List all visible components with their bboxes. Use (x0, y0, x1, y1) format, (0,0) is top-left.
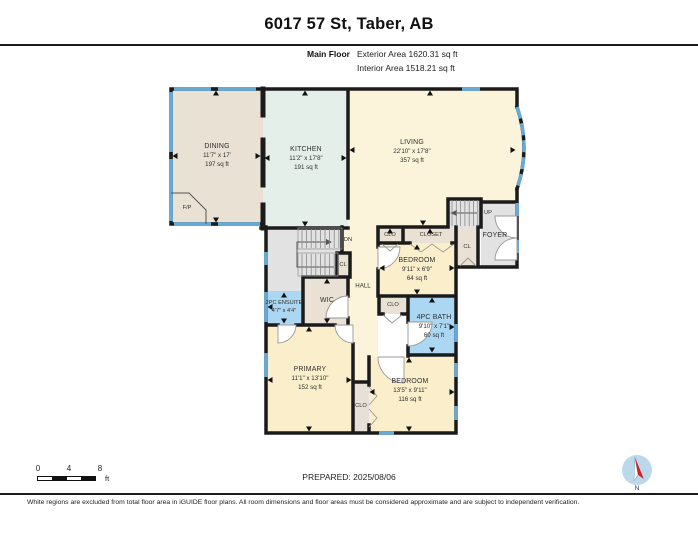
clo-top-label: CLO (384, 232, 396, 238)
fireplace-label: F/P (183, 205, 192, 211)
stairs-down-label: DN (344, 237, 352, 243)
prepared-date: PREPARED: 2025/08/06 (0, 472, 698, 482)
room-label-dining: DINING11'7" x 17'197 sq ft (203, 142, 231, 170)
room-label-hall: HALL (355, 283, 370, 292)
cl-foyer-label: CL (463, 244, 470, 250)
room-label-kitchen: KITCHEN11'2" x 17'8"191 sq ft (289, 145, 322, 173)
room-label-bedroom-bottom: BEDROOM13'5" x 9'11"116 sq ft (391, 377, 428, 405)
room-label-bedroom-mid: BEDROOM9'11" x 6'9"64 sq ft (398, 256, 435, 284)
room-label-primary: PRIMARY11'1" x 13'10"152 sq ft (292, 365, 329, 393)
clo-mid-label: CLO (387, 302, 399, 308)
cl-stairs-label: CL (339, 262, 346, 268)
room-label-bath: 4PC BATH9'10" x 7'1"60 sq ft (417, 313, 452, 341)
hall-floor-2 (353, 357, 369, 382)
room-label-ensuite: 2PC ENSUITE4'7" x 4'4" (266, 299, 303, 315)
clo-mid-bifold (383, 315, 402, 323)
floor-plan-drawing (0, 0, 698, 540)
closet-label: CLOSET (420, 232, 443, 238)
room-label-wic: WIC (320, 296, 334, 306)
room-label-living: LIVING22'10" x 17'8"357 sq ft (393, 138, 430, 166)
floor-plan-page: 6017 57 St, Taber, AB Main Floor Exterio… (0, 0, 698, 540)
room-label-foyer: FOYER (483, 231, 508, 241)
clo-bottom-label: CLO (355, 403, 367, 409)
disclaimer-text: White regions are excluded from total fl… (27, 499, 579, 506)
compass-icon (620, 454, 654, 488)
compass-north-label: N (620, 485, 654, 492)
footer-divider (0, 493, 698, 495)
scale-bar (38, 476, 100, 481)
stairs-up-label: UP (484, 210, 492, 216)
